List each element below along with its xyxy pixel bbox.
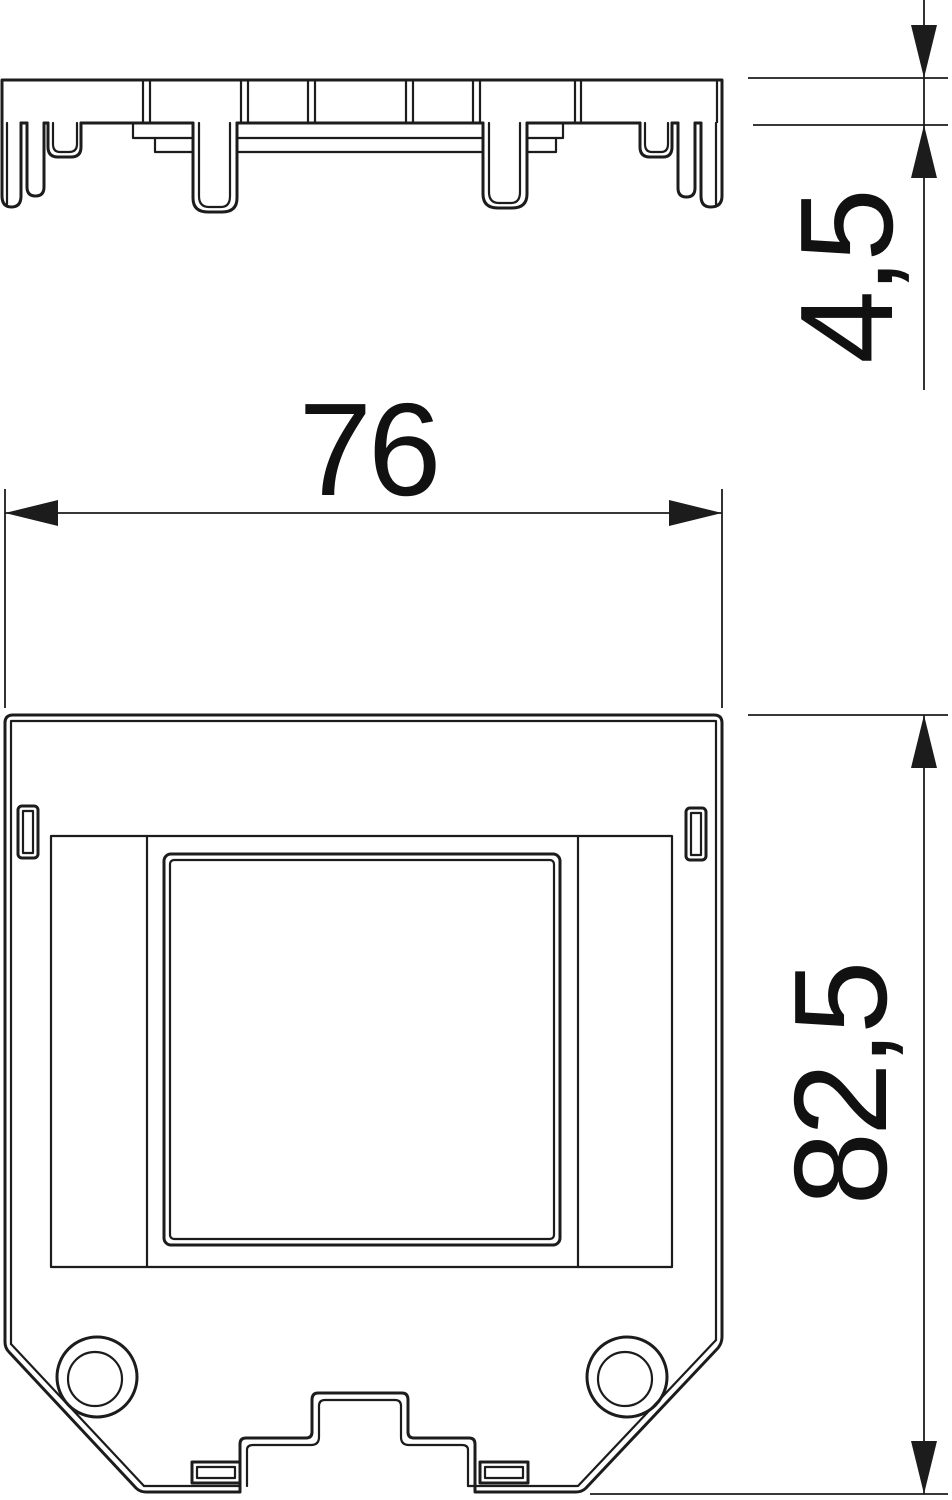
thickness-arrowhead-up [911,125,937,178]
dimension-width: 76 [5,376,722,708]
left-outer-clip [2,123,21,207]
right-foot-pad [480,1462,528,1483]
right-inner-clip [678,123,695,197]
plate-outline [5,715,722,1492]
left-clip-slot [18,806,38,858]
width-arrowhead-left [5,500,58,526]
thickness-dimension-label: 4,5 [773,192,920,364]
technical-drawing: 76 4,5 82,5 [0,0,952,1500]
thickness-arrowhead-down [911,25,937,78]
dimension-thickness: 4,5 [748,0,948,390]
drawing-canvas: 76 4,5 82,5 [0,0,952,1500]
front-view [5,715,722,1492]
height-dimension-label: 82,5 [767,965,914,1206]
width-dimension-label: 76 [299,376,438,523]
right-outer-clip [701,123,722,207]
height-arrowhead-up [911,715,937,768]
width-arrowhead-right [669,500,722,526]
side-bar-divider-lines [143,81,581,122]
right-clip-slot [686,808,706,860]
height-arrowhead-down [911,1441,937,1494]
left-foot-pad [192,1462,240,1483]
side-clips [2,123,722,212]
side-profile-view [2,80,722,212]
left-inner-clip [27,123,44,196]
side-bar-outline [2,80,722,123]
